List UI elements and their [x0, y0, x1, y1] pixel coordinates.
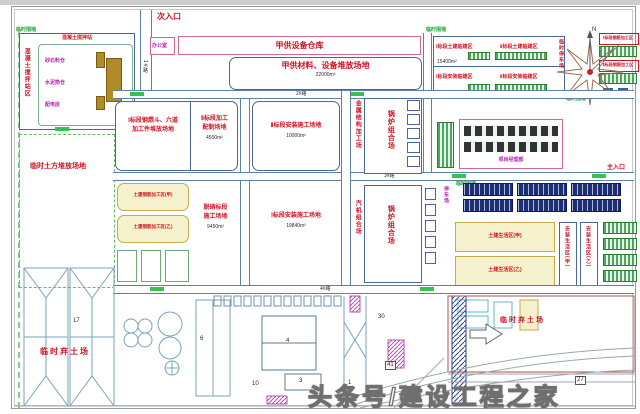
main-entrance-label: 主入口: [607, 165, 625, 172]
camp-cell-2-label: Ⅱ标段土建临建区: [500, 44, 537, 50]
gate-tick: [350, 92, 364, 96]
plant-number-17: 17: [73, 318, 80, 325]
denitration-label2: 施工场地: [193, 214, 238, 221]
dormitory-building: [603, 238, 637, 250]
gate-tick: [130, 92, 144, 96]
shed-unit: [407, 114, 420, 125]
shed-unit: [425, 220, 436, 232]
parking-lot: [463, 183, 513, 196]
plant-number-10: 10: [252, 381, 259, 388]
zone2-install-size: 10000m²: [252, 133, 340, 139]
dormitory-building: [437, 122, 454, 168]
parking-lot: [463, 199, 513, 212]
parking-lot: [517, 199, 567, 212]
secondary-entrance-label: 次入口: [157, 12, 181, 22]
gate-tick: [452, 174, 466, 178]
shed-unit: [407, 142, 420, 153]
zone1-steel-label: Ⅰ标段钢煨斗、六道: [115, 118, 191, 125]
office-label: 办公室: [152, 43, 167, 49]
plant-number-6: 6: [200, 336, 203, 343]
materials-area-label: 甲供材料、设备堆放场地: [229, 61, 422, 71]
shed-unit: [425, 188, 436, 200]
rebar-shed-a-label: 土建钢筋加工区(甲): [118, 192, 188, 197]
plant-number-30: 30: [378, 314, 385, 321]
bin-label-cement: 水泥筒仓: [45, 80, 65, 86]
bin-label-power: 配电房: [45, 102, 60, 108]
gate-tick: [55, 127, 69, 131]
mixer-silo-shape: [96, 96, 105, 110]
office-compound-label: 项目经理部: [459, 157, 563, 163]
dormitory-building: [468, 52, 490, 60]
parking-lot: [517, 183, 567, 196]
office-row-building: [464, 126, 558, 136]
camp-cell-1-label: Ⅰ标段土建临建区: [436, 44, 472, 50]
denitration-label: 脱硝标段: [193, 205, 238, 212]
metal-yard-label: 金属结构加工场: [353, 100, 360, 149]
site-plan-drawing: 次入口 1#路 混凝土搅拌站区 混凝土搅拌站 砂石料仓 水泥筒仓 配电房 办公室…: [0, 0, 640, 414]
batching-plant-side-label: 混凝土搅拌站区: [22, 48, 29, 97]
turbine-yard-label: 汽机组合场: [353, 200, 360, 235]
warehouse-label: 甲供设备仓库: [178, 41, 421, 51]
plant-number-41: 41: [385, 361, 396, 370]
north-label: N: [592, 27, 596, 34]
office-row-building: [464, 142, 558, 152]
camp-area-size: 15400m²: [437, 59, 457, 65]
parking-label: 停车场: [443, 186, 449, 204]
camp-road: [423, 33, 432, 173]
shed-unit: [407, 156, 420, 167]
road-1-label: 1#路: [142, 60, 148, 74]
watermark: 头条号/建设工程之家: [308, 384, 561, 413]
zone1-steel-label2: 加工件堆放场地: [115, 127, 191, 134]
plant-number-27: 27: [575, 376, 586, 385]
camp-cell-3-label: Ⅰ标段安装临建区: [436, 74, 472, 80]
temp-earth-label: 临时土方堆放场地: [30, 163, 86, 171]
rebar-shed-b-label: 土建钢筋加工区(乙): [118, 224, 188, 229]
page-top-edge: [0, 0, 640, 5]
spoil-left-label: 临时弃土场: [40, 347, 90, 357]
shed-unit: [425, 236, 436, 248]
camp-cell-4-label: Ⅱ标段安装临建区: [500, 74, 537, 80]
shed-unit: [407, 128, 420, 139]
boiler-yard-2-label: 锅炉组合场: [386, 205, 394, 245]
zone1-install-label: Ⅰ标段安装施工场地: [252, 213, 340, 220]
zone2-install-label: Ⅱ标段安装施工场地: [252, 123, 340, 130]
mixer-silo-shape: [96, 52, 105, 68]
parking-lot: [571, 183, 621, 196]
zone2-process-label2: 配制场地: [191, 125, 238, 132]
bin-label-aggregate: 砂石料仓: [45, 58, 65, 64]
boiler-yard-1-label: 锅炉组合场: [386, 110, 394, 150]
zone2-process-size: 4500m²: [191, 135, 238, 141]
plant-number-4: 4: [286, 338, 289, 345]
batching-plant-title: 混凝土搅拌站: [62, 35, 92, 41]
shed-unit: [407, 100, 420, 111]
plant-number-3: 3: [299, 378, 302, 385]
living-cell-1-label: 土建生活区(甲): [455, 233, 555, 239]
gate-tick: [592, 174, 606, 178]
road-2-label: 2#路: [296, 91, 307, 97]
zone1-install-size: 19840m²: [252, 223, 340, 229]
wind-rose-icon: [540, 26, 632, 114]
denitration-size: 9450m²: [193, 224, 238, 230]
materials-area-size: 22000m²: [229, 72, 422, 78]
zone2-process-label: Ⅱ标段加工: [191, 116, 238, 123]
dormitory-building: [603, 222, 637, 234]
parking-lot: [571, 199, 621, 212]
fence-label: 临时围墙: [426, 27, 446, 33]
shed-unit: [425, 204, 436, 216]
fence-label: 临时围墙: [16, 27, 36, 33]
spoil-right-label: 临时弃土场: [500, 317, 545, 325]
